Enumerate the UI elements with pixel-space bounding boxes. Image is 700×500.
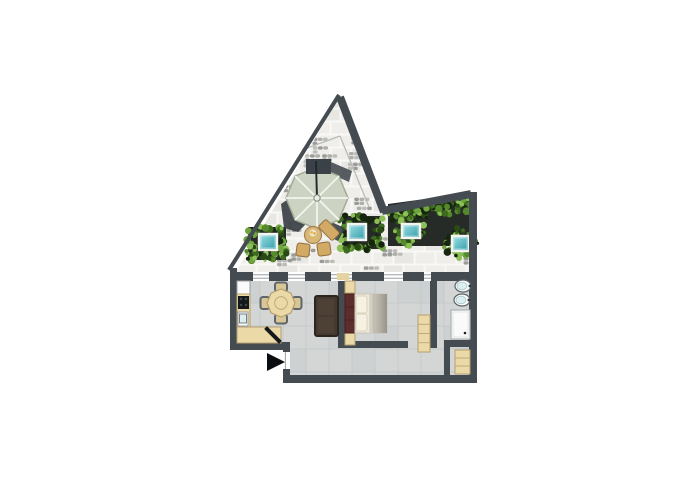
skylight [452,236,469,251]
entry-door [283,352,290,369]
food-item [310,231,313,234]
nightstand [345,333,355,345]
floor-plan-canvas [0,0,700,500]
bathroom-wall [430,273,437,348]
top-wall-segment [305,272,331,281]
sofa-cushion [318,299,334,315]
skylight [259,234,277,250]
terrace-chair [317,242,332,257]
sofa-cushion [318,317,334,333]
chimney-block [306,159,331,174]
shower-drain [464,332,467,335]
closet-wall [444,347,450,378]
bed-headboard [345,294,355,333]
umbrella-pole [316,161,317,198]
terrace-chair [296,243,311,258]
floor-plan [0,0,700,500]
planter-middle [337,212,386,253]
food-item [313,232,315,234]
pillow [356,314,367,331]
sofa [315,296,338,336]
shower [451,310,470,339]
nightstand [345,281,355,293]
bed-duvet [369,294,387,333]
closet-shelves [455,350,470,374]
dining-table [267,289,295,317]
pillow [356,296,367,313]
top-wall-segment [230,272,253,281]
faucet [468,299,471,302]
living-bedroom-wall [338,281,345,348]
window [424,272,431,281]
planter-left [243,224,289,264]
window [384,272,403,281]
terrace-door-threshold [337,273,349,280]
fridge [237,281,250,294]
window [253,272,269,281]
wardrobe [418,315,430,352]
skylight [348,224,366,240]
bathroom-sink [454,294,471,306]
food-item [312,237,314,239]
cooktop [238,296,249,309]
umbrella-hub [314,195,320,201]
terrace-table [305,227,322,244]
faucet [469,285,472,288]
bathroom-sink [455,280,472,292]
kitchen-sink [238,312,248,326]
skylight [402,224,420,238]
top-wall-segment [352,272,384,281]
bathroom-bottom-wall [444,340,470,347]
top-wall-segment [269,272,288,281]
top-wall-segment [403,272,424,281]
window [288,272,305,281]
